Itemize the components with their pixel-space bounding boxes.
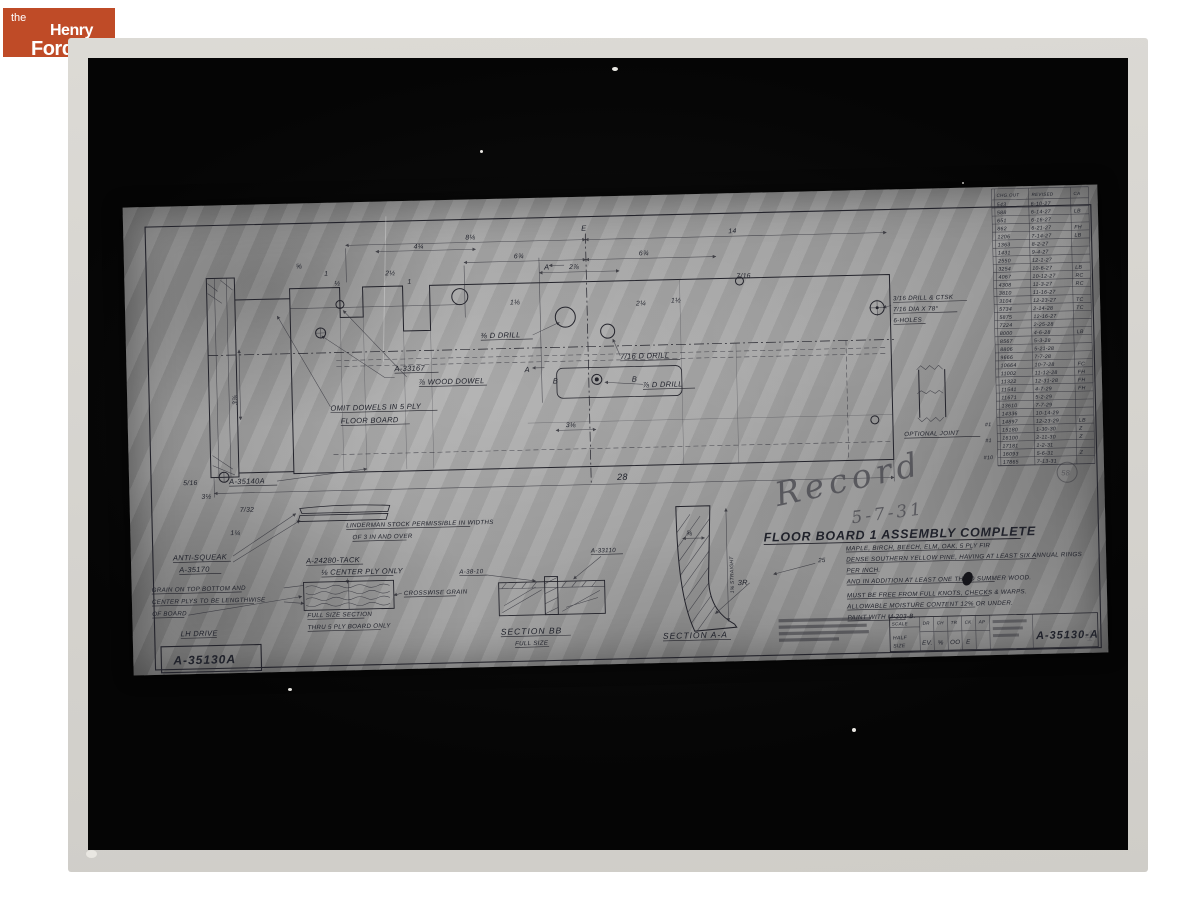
dim: 3½ [201,493,211,501]
revision-cell: 5-21-28 [1034,346,1054,352]
revision-cell: 3254 [998,266,1011,272]
part-callout: A-24280-TACK [305,555,361,565]
revision-cell: 11-12-28 [1035,370,1058,377]
logo-the: the [11,12,26,24]
hash-mark: #10 [984,455,994,461]
grain-section [284,580,395,611]
hash-mark: #1 [985,422,992,428]
title-area: Record 5-7-31 FLOOR BOARD 1 ASSEMBLY COM… [761,440,1084,623]
revision-rows: 5436-10-275886-14-27LB6516-16-278626-21-… [992,200,1095,466]
revision-cell: 6-21-27 [1031,225,1052,231]
handwritten-date: 5-7-31 [850,499,925,528]
revision-cell: 16093 [1003,451,1019,457]
centerline-marker-e: E [581,224,587,233]
handwritten-check: 4 [1084,629,1095,645]
revision-cell: 10-14-29 [1036,410,1059,417]
revision-cell: 1206 [997,234,1010,240]
revision-cell: 7224 [1000,323,1013,329]
titleblock-col-header: TR [951,620,958,625]
dim: ½ [334,279,340,287]
material-note: MUST BE FREE FROM FULL KNOTS, CHECKS & W… [847,588,1027,599]
revision-cell: 7-13-31 [1037,459,1057,465]
material-note: ALLOWABLE MOISTURE CONTENT 12% OR UNDER. [846,600,1013,611]
revision-cell: TC [1076,297,1084,303]
dim: 4¼ [414,244,424,251]
dust-speck [288,688,292,691]
linderman-sketch [298,504,390,521]
titleblock-col-value: EV. [922,640,933,647]
dim: ⅝ [686,530,692,537]
dim: 7/32 [240,507,255,514]
revision-cell: 11-16-27 [1033,289,1057,296]
page: the Henry Ford [0,0,1200,900]
section-marker-a: A [543,263,550,272]
section-marker-b: B [632,374,638,383]
revision-cell: 12-23-29 [1036,418,1059,425]
revision-cell: 2-25-28 [1033,322,1054,328]
dim: 7/16 [736,273,751,280]
part-callout: A-35140A [228,476,265,486]
revision-cell: 2-14-28 [1032,306,1053,312]
dim: ⅝ [296,263,302,270]
revision-cell: 16100 [1002,435,1018,441]
dim: 2½ [384,269,395,277]
titleblock-col-header: CK [965,620,973,625]
revision-cell: 1-2-31 [1036,443,1053,449]
dim: 28 [616,472,628,482]
revision-cell: LB [1079,418,1086,424]
dim: 6¾ [639,250,649,257]
revision-col-header: REVISED [1031,192,1053,198]
title-block: SCALE HALF SIZE DR CH TR CK AP EV. ⅝ OO … [779,612,1100,655]
section-aa: 1⅝ STRAIGHT ⅝ 3R SECTION A-A [600,504,773,652]
note-callout: LH DRIVE [181,628,219,638]
section-title: SECTION A-A [663,629,728,641]
dim: 5/16 [183,480,198,487]
revision-cell: 14897 [1002,419,1019,425]
revision-cell: 5875 [999,315,1012,321]
revision-cell: 8806 [1000,347,1013,353]
drill-callout: 7/16 D DRILL [620,351,669,361]
plan-view [205,226,897,492]
material-note: MAPLE, BIRCH, BEECH, ELM, OAK, 5 PLY FIR [846,542,991,552]
revision-cell: 12-16-27 [1033,314,1057,321]
dim: 14 [728,228,736,235]
revision-col-header: CHG.OUT [996,192,1020,198]
revision-cell: 11322 [1001,379,1017,385]
dust-speck [962,182,964,184]
revision-cell: 11541 [1001,387,1017,393]
revision-cell: 8000 [1000,331,1013,337]
dim: 3⅛ [566,422,576,429]
revision-cell: 5734 [999,307,1012,313]
revision-cell: 3104 [999,299,1012,305]
revision-cell: 1-30-30 [1036,426,1056,432]
ink-blot [961,570,975,586]
titleblock-col-header: DR [923,621,931,626]
photo-print-border: 8⅛ 14 4¼ 6¾ 6¾ 2⅞ 28 3⅛ [68,38,1148,872]
material-note: DENSE SOUTHERN YELLOW PINE, HAVING AT LE… [846,551,1083,564]
revision-cell: 9666 [1000,355,1013,361]
revision-cell: 6-10-27 [1031,201,1052,207]
dim: 2⅞ [568,264,579,271]
revision-cell: 5-3-28 [1034,338,1051,344]
drill-holes [215,274,889,483]
section-title: SECTION BB [501,625,563,636]
revision-cell: 10-12-27 [1032,273,1056,280]
revision-cell: 1363 [998,242,1011,248]
drawing-sheet: 8⅛ 14 4¼ 6¾ 6¾ 2⅞ 28 3⅛ [123,184,1109,675]
revision-cell: 651 [997,218,1007,224]
dim: 1⅝ STRAIGHT [729,556,736,594]
note-callout: A-35170 [178,565,210,575]
drawing: 8⅛ 14 4¼ 6¾ 6¾ 2⅞ 28 3⅛ [123,184,1109,675]
titleblock-col-value: OO [950,639,960,646]
note-margin-mark: 25 [817,557,826,564]
revision-cell: 6-16-27 [1031,217,1052,223]
revision-cell: 12-23-27 [1033,297,1057,304]
revision-cell: 7-7-29 [1035,402,1052,408]
revision-cell: FH [1078,369,1086,375]
dust-speck [480,150,483,153]
revision-cell: Z [1078,426,1083,432]
revision-cell: 10-6-27 [1032,265,1053,271]
revision-cell: 5-6-31 [1037,451,1054,457]
part-callout: A-38-10 [458,568,484,576]
revision-cell: 11002 [1001,371,1017,377]
dim: 1 [324,271,328,278]
revision-cell: 588 [997,210,1007,216]
titleblock-col-header: CH [937,620,945,625]
revision-cell: 14336 [1002,411,1018,417]
section-marker-b: B [553,376,559,385]
revision-cell: 17181 [1002,443,1018,449]
corner-drawing-number: A-35130A [172,652,236,668]
titleblock-col-value: ⅝ [938,639,944,646]
revision-cell: 2-11-30 [1035,434,1056,440]
revision-cell: FH [1074,224,1082,230]
revision-table: CHG.OUT REVISED CA 5436-10-275886-14-27L… [977,187,1095,467]
note-callout: CROSSWISE GRAIN [404,589,468,598]
dim: 8⅛ [465,234,475,241]
revision-cell: FH [1078,385,1086,391]
revision-cell: LB [1074,232,1081,238]
revision-cell: 12-1-27 [1032,257,1053,263]
dim: 2¼ [635,300,646,307]
revision-cell: 8-2-27 [1032,241,1050,247]
revision-cell: 13610 [1001,403,1017,409]
optional-joint: OPTIONAL JOINT [903,364,981,438]
dim: 1¼ [230,530,240,537]
revision-cell: 10664 [1001,363,1017,369]
revision-cell: FC [1078,361,1086,367]
drill-callout: ⅜ D DRILL [481,330,521,340]
revision-cell: 17865 [1003,459,1019,465]
revision-cell: 12-31-28 [1035,378,1058,385]
scale-value: SIZE [893,643,906,649]
scale-value: HALF [893,635,908,641]
section-marker-a: A [523,365,530,374]
section-bb: SECTION BB FULL SIZE [498,575,606,647]
section-subtitle: FULL SIZE [515,640,549,648]
drill-callout: 6-HOLES [893,317,922,325]
revision-cell: LB [1074,208,1081,214]
revision-cell: 11671 [1001,395,1017,401]
dim: 3⅞ [232,395,239,405]
revision-cell: RC [1075,273,1083,279]
stamp-number: 58 [1061,468,1071,477]
dim: 1½ [671,296,681,304]
revision-cell: 5-2-29 [1035,394,1052,400]
revision-col-header: CA [1073,191,1080,196]
note-callout: THRU 5 PLY BOARD ONLY [308,622,392,631]
hash-mark: #1 [985,438,992,444]
revision-cell: 11-3-27 [1033,281,1054,287]
dim: 1⅛ [510,299,520,306]
revision-cell: 10-7-28 [1035,362,1055,368]
dust-speck [852,728,856,732]
revision-cell: TC [1076,305,1084,311]
revision-cell: 2550 [997,258,1011,264]
revision-cell: 4-6-28 [1034,330,1051,336]
dim: 6¾ [514,253,524,260]
scale-label: SCALE [892,621,909,626]
material-note: AND IN ADDITION AT LEAST ONE THIRD SUMME… [846,574,1032,585]
revision-cell: 3810 [999,291,1012,297]
revision-cell: 6-14-27 [1031,209,1052,215]
photograph: 8⅛ 14 4¼ 6¾ 6¾ 2⅞ 28 3⅛ [88,58,1128,850]
titleblock-name-scribble [993,619,1027,637]
revision-cell: 7-14-27 [1031,233,1052,239]
revision-cell: 15180 [1002,427,1018,433]
part-callout: A-33110 [590,547,616,555]
revision-cell: 7-7-28 [1034,354,1051,360]
titleblock-col-header: AP [978,619,986,624]
revision-cell: RC [1076,281,1084,287]
drill-callout: ⅞ D DRILL [643,379,683,389]
revision-cell: Z [1078,434,1083,440]
revision-cell: 4-7-29 [1035,386,1052,392]
dust-speck [612,67,618,71]
revision-cell: LB [1077,329,1084,335]
note-callout: OF BOARD [152,610,187,618]
note-callout: ANTI-SQUEAK [172,552,228,562]
revision-cell: 862 [997,226,1007,232]
revision-cell: 9-4-27 [1032,249,1050,255]
revision-cell: 8567 [1000,339,1014,345]
revision-cell: FH [1078,377,1086,383]
revision-cell: Z [1079,450,1084,456]
note-callout: FLOOR BOARD [341,415,399,425]
print-blemish [86,850,97,858]
titleblock-col-value: E [966,639,971,646]
revision-cell: 543 [997,202,1007,208]
revision-cell: 1431 [998,250,1011,256]
revision-cell: 4067 [998,274,1012,280]
dim: 1 [407,279,411,286]
revision-cell: LB [1075,265,1082,271]
revision-cell: 4308 [999,282,1012,288]
